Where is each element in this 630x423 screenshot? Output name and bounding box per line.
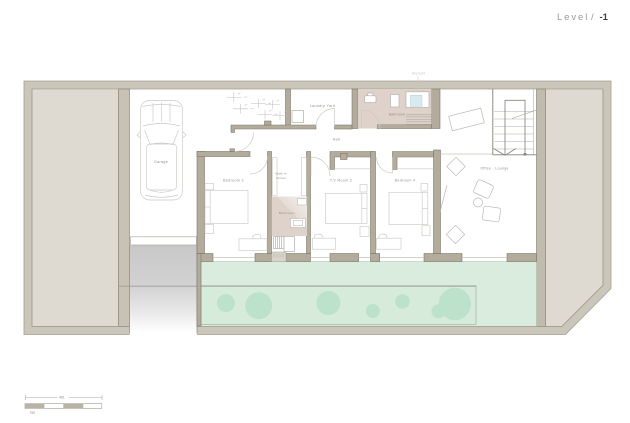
svg-text:481: 481	[59, 396, 65, 400]
svg-text:Office - Lounge: Office - Lounge	[480, 167, 508, 171]
svg-text:Hall: Hall	[333, 138, 341, 142]
svg-text:Level: Level	[557, 12, 589, 23]
svg-text:Bedroom 3: Bedroom 3	[223, 179, 244, 183]
svg-text:Bathroom: Bathroom	[389, 113, 406, 117]
svg-text:Garage: Garage	[154, 160, 168, 164]
svg-text:Closet: Closet	[276, 176, 286, 180]
svg-text:Skylight: Skylight	[412, 72, 426, 76]
svg-text:Laundry Yard: Laundry Yard	[310, 104, 335, 108]
svg-text:Bathroom: Bathroom	[279, 211, 295, 215]
svg-text:/: /	[591, 12, 594, 23]
svg-text:Bedroom 4: Bedroom 4	[395, 179, 416, 183]
svg-text:750: 750	[30, 411, 36, 415]
svg-text:-1: -1	[600, 12, 609, 23]
svg-text:T.V Room 2: T.V Room 2	[330, 179, 352, 183]
